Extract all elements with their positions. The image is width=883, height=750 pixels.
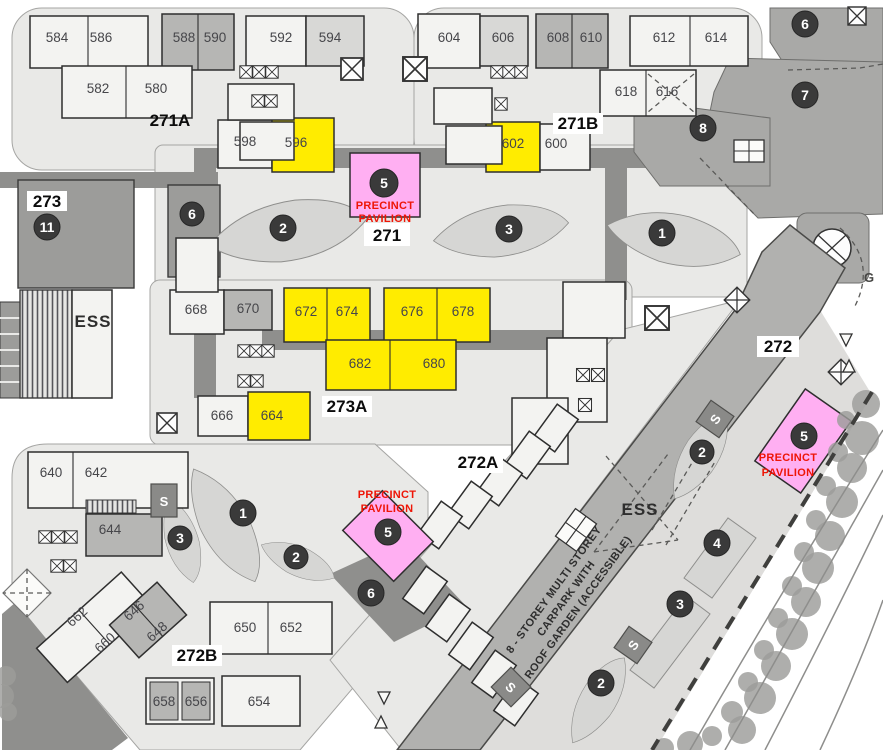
- block-label-674: 674: [336, 304, 359, 319]
- badge-6-left: 6: [180, 202, 204, 226]
- block-label-682: 682: [349, 356, 372, 371]
- xbox-icon: [262, 345, 274, 357]
- xbox-icon: [240, 66, 252, 78]
- xbox-icon: [65, 531, 77, 543]
- xbox-icon: [238, 345, 250, 357]
- badge-11: 11: [34, 214, 60, 240]
- block-label-616: 616: [656, 84, 679, 99]
- area-label-271B: 271B: [558, 114, 599, 133]
- badge-4-272: 4: [704, 530, 730, 556]
- ess-left-building: [72, 290, 112, 398]
- badge-2-272B: 2: [284, 545, 308, 569]
- area-label-273: 273: [33, 192, 61, 211]
- xbox-icon: [250, 345, 262, 357]
- svg-text:5: 5: [384, 524, 392, 540]
- block-label-606: 606: [492, 30, 515, 45]
- svg-text:11: 11: [40, 219, 55, 235]
- corridor-273A: [176, 238, 218, 292]
- block-label-614: 614: [705, 30, 728, 45]
- block-label-644: 644: [99, 522, 122, 537]
- block-label-592: 592: [270, 30, 293, 45]
- block-label-680: 680: [423, 356, 446, 371]
- svg-text:2: 2: [597, 675, 605, 691]
- xbox-icon: [579, 399, 592, 412]
- xbox-icon: [577, 369, 590, 382]
- block-label-676: 676: [401, 304, 424, 319]
- badge-2-272: 2: [690, 440, 714, 464]
- corridor-271B-2: [446, 126, 502, 164]
- ess-right-label: ESS: [621, 500, 658, 519]
- xbox-icon: [253, 66, 265, 78]
- badge-6-topright: 6: [792, 11, 818, 37]
- svg-text:2: 2: [279, 220, 287, 236]
- block-label-598: 598: [234, 134, 257, 149]
- svg-text:7: 7: [801, 87, 809, 103]
- block-label-602: 602: [502, 136, 525, 151]
- block-label-584: 584: [46, 30, 69, 45]
- xbox-icon: [491, 66, 503, 78]
- ess-left-label: ESS: [74, 312, 111, 331]
- block-label-582: 582: [87, 81, 110, 96]
- block-label-652: 652: [280, 620, 303, 635]
- area-label-272A: 272A: [458, 453, 499, 472]
- svg-text:8: 8: [699, 120, 707, 136]
- svg-text:4: 4: [713, 535, 721, 551]
- badge-2-271: 2: [270, 215, 296, 241]
- svg-text:PAVILION: PAVILION: [359, 213, 412, 225]
- xbox-icon: [238, 375, 250, 387]
- tower-272A-upper[interactable]: [563, 282, 625, 338]
- svg-text:1: 1: [658, 225, 666, 241]
- svg-text:6: 6: [367, 585, 375, 601]
- svg-text:6: 6: [188, 206, 196, 222]
- block-label-668: 668: [185, 302, 208, 317]
- block-650-652[interactable]: [210, 602, 332, 654]
- block-label-596: 596: [285, 135, 308, 150]
- block-label-640: 640: [40, 465, 63, 480]
- xbox-icon: [403, 57, 427, 81]
- xbox-icon: [252, 95, 264, 107]
- badge-3-271: 3: [496, 216, 522, 242]
- svg-text:5: 5: [800, 428, 808, 444]
- block-label-666: 666: [211, 408, 234, 423]
- xbox-icon: [341, 58, 363, 80]
- block-644[interactable]: [86, 514, 162, 556]
- svg-text:PAVILION: PAVILION: [762, 467, 815, 479]
- block-label-650: 650: [234, 620, 257, 635]
- svg-text:3: 3: [505, 221, 513, 237]
- badge-5-272-pav: 5: [791, 423, 817, 449]
- block-label-610: 610: [580, 30, 603, 45]
- pavilion-271-text: PRECINCT PAVILION: [356, 200, 415, 225]
- block-label-664: 664: [261, 408, 284, 423]
- svg-text:5: 5: [380, 175, 388, 191]
- block-label-594: 594: [319, 30, 342, 45]
- block-273-hatched-wing: [20, 290, 72, 398]
- badge-3-272B: 3: [168, 526, 192, 550]
- block-label-670: 670: [237, 301, 260, 316]
- corridor-271B-1: [434, 88, 492, 124]
- xbox-icon: [265, 95, 277, 107]
- xbox-icon: [157, 413, 177, 433]
- svg-text:PRECINCT: PRECINCT: [759, 452, 818, 464]
- xbox-icon: [51, 560, 63, 572]
- substation-label: S: [160, 494, 169, 509]
- block-label-588: 588: [173, 30, 196, 45]
- precinct-site-map: S S S S 6 7 8 11 6 2 5 3 1 1 3 2 5 6 2 4…: [0, 0, 883, 750]
- xbox-icon: [592, 369, 605, 382]
- xbox-icon: [515, 66, 527, 78]
- hatched-strip-644: [86, 500, 136, 513]
- badge-8: 8: [690, 115, 716, 141]
- badge-5-271: 5: [370, 169, 398, 197]
- svg-text:3: 3: [676, 596, 684, 612]
- area-label-271: 271: [373, 226, 401, 245]
- xbox-icon: [848, 7, 866, 25]
- area-label-273A: 273A: [327, 397, 368, 416]
- xbox-icon: [39, 531, 51, 543]
- badge-1-272B: 1: [230, 500, 256, 526]
- area-label-271A: 271A: [150, 111, 191, 130]
- svg-text:PRECINCT: PRECINCT: [358, 489, 417, 501]
- svg-text:1: 1: [239, 505, 247, 521]
- badge-6-272B: 6: [358, 580, 384, 606]
- block-label-590: 590: [204, 30, 227, 45]
- block-label-618: 618: [615, 84, 638, 99]
- block-label-654: 654: [248, 694, 271, 709]
- badge-5-272B: 5: [375, 519, 401, 545]
- area-label-272B: 272B: [177, 646, 218, 665]
- svg-text:6: 6: [801, 16, 809, 32]
- block-label-612: 612: [653, 30, 676, 45]
- xbox-icon: [495, 98, 507, 110]
- svg-text:2: 2: [698, 444, 706, 460]
- area-label-272: 272: [764, 337, 792, 356]
- svg-text:PAVILION: PAVILION: [361, 503, 414, 515]
- block-label-678: 678: [452, 304, 475, 319]
- block-label-658: 658: [153, 694, 176, 709]
- svg-text:3: 3: [176, 530, 184, 546]
- block-label-580: 580: [145, 81, 168, 96]
- xbox-icon: [266, 66, 278, 78]
- xbox-icon: [64, 560, 76, 572]
- block-label-656: 656: [185, 694, 208, 709]
- badge-3-272: 3: [667, 591, 693, 617]
- xbox-icon: [52, 531, 64, 543]
- xbox-icon: [503, 66, 515, 78]
- badge-7: 7: [792, 82, 818, 108]
- block-612-614[interactable]: [630, 16, 748, 66]
- svg-text:2: 2: [292, 549, 300, 565]
- block-label-642: 642: [85, 465, 108, 480]
- badge-2-garden: 2: [588, 670, 614, 696]
- garden-access-label: G: [864, 270, 874, 285]
- xbox-icon: [251, 375, 263, 387]
- block-label-608: 608: [547, 30, 570, 45]
- block-label-672: 672: [295, 304, 318, 319]
- badge-1-271: 1: [649, 220, 675, 246]
- block-label-586: 586: [90, 30, 113, 45]
- block-label-600: 600: [545, 136, 568, 151]
- block-label-604: 604: [438, 30, 461, 45]
- svg-text:PRECINCT: PRECINCT: [356, 200, 415, 212]
- xbox-icon: [645, 306, 669, 330]
